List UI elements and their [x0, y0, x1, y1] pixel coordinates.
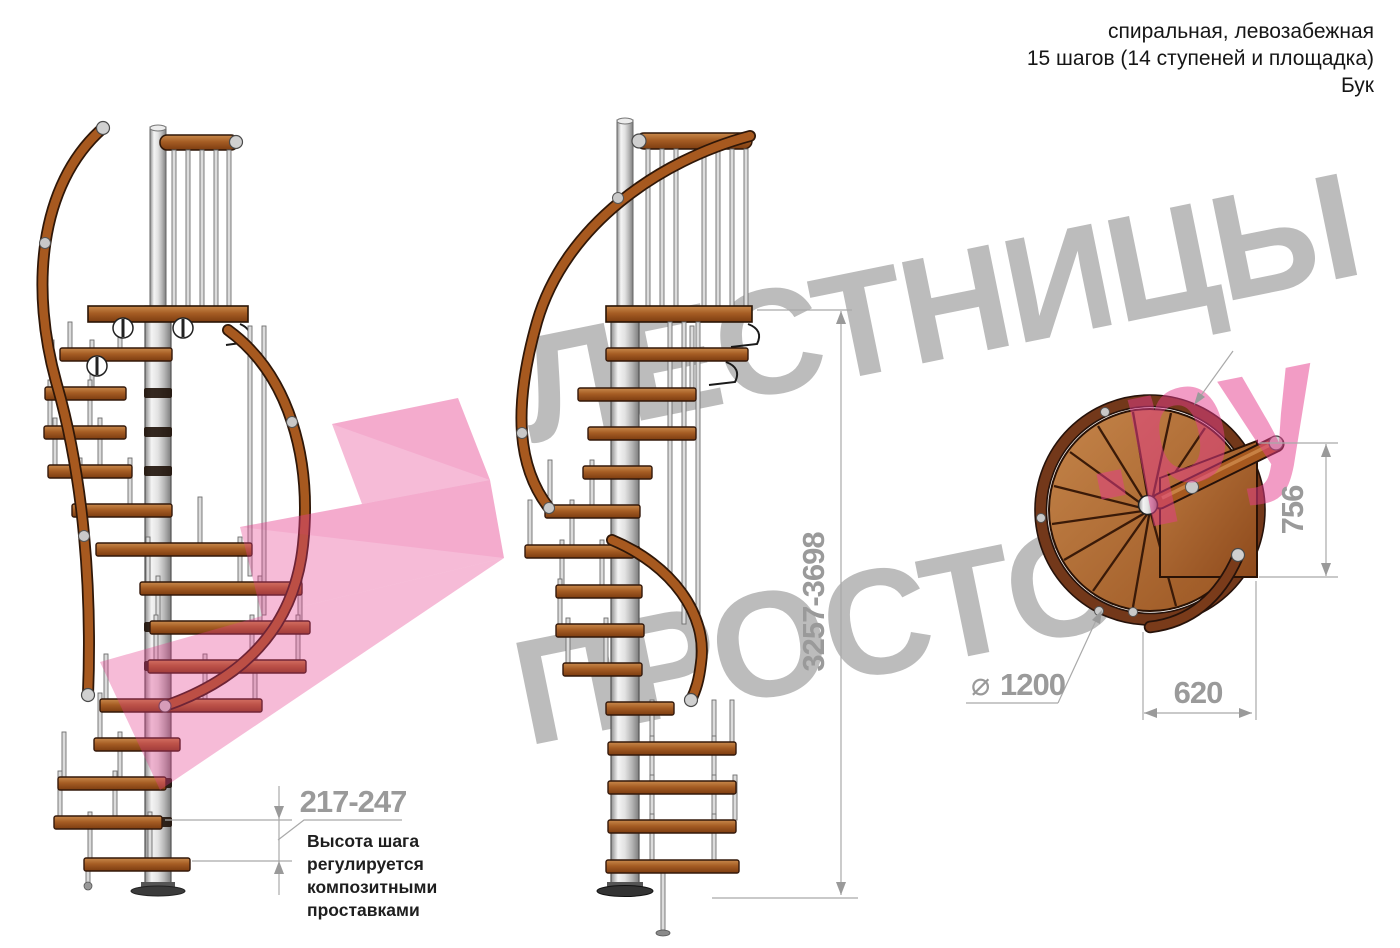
dim-diameter: 1200: [1000, 667, 1065, 702]
handrail-end-cap: [230, 136, 243, 149]
step-note-line1: Высота шага: [307, 831, 419, 851]
baluster-foot: [84, 882, 92, 890]
landing-slab: [606, 306, 752, 322]
handrail-end-cap: [632, 134, 646, 148]
baluster-foot: [656, 930, 670, 936]
landing-slab: [88, 306, 248, 322]
side-view-front: [517, 118, 760, 936]
diameter-symbol-icon: ⌀: [971, 665, 990, 703]
pole-cap: [617, 118, 633, 124]
spiral-staircase-drawing: ЛЕСТНИЦЫ ПРОСТО: [0, 0, 1400, 948]
center-pole-upper: [617, 120, 633, 312]
title-line1: спиральная, левозабежная: [1108, 20, 1374, 43]
dim-landing-width: 620: [1174, 675, 1223, 710]
step-note-line3: композитными: [307, 877, 437, 897]
base-flange: [597, 886, 653, 897]
step-note-line2: регулируется: [307, 854, 424, 874]
center-pole-upper: [150, 127, 166, 312]
title-line2: 15 шагов (14 ступеней и площадка): [1027, 47, 1374, 70]
landing-handrail: [160, 135, 238, 150]
dim-total-height: 3257-3698: [796, 532, 831, 672]
landing-balusters: [172, 150, 231, 306]
title-block: спиральная, левозабежная 15 шагов (14 ст…: [1027, 20, 1375, 97]
dim-landing-depth: 756: [1275, 485, 1310, 534]
dim-step-height: 217-247: [300, 784, 407, 819]
mount-symbols: [87, 318, 193, 376]
drawing-canvas: ЛЕСТНИЦЫ ПРОСТО: [0, 0, 1400, 948]
base-flange: [131, 886, 185, 896]
step-note-line4: проставками: [307, 900, 420, 920]
title-line3: Бук: [1341, 74, 1375, 97]
pole-cap: [150, 125, 166, 131]
